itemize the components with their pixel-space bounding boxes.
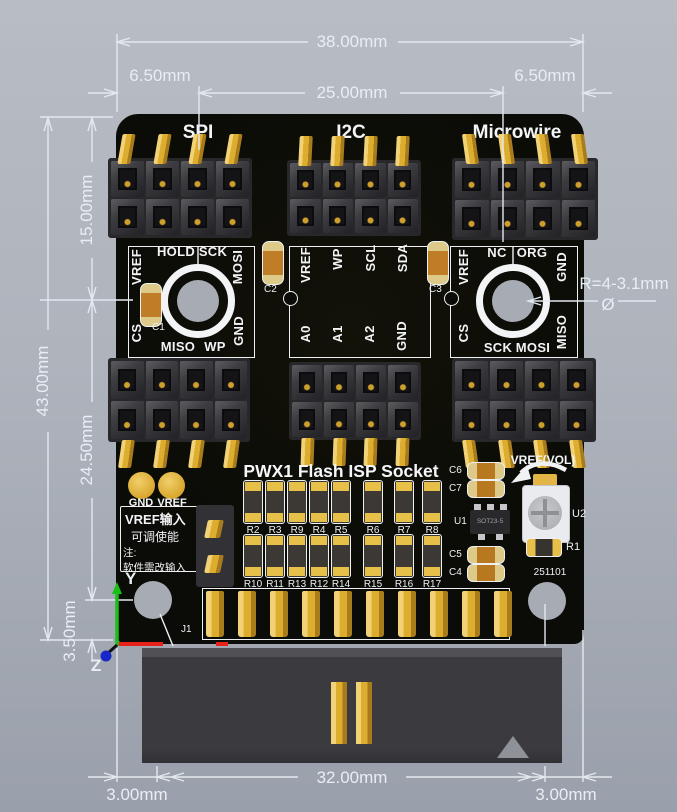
header-socket bbox=[355, 163, 386, 197]
dim-hole-note: R=4-3.1mm bbox=[579, 274, 668, 293]
j1-pin bbox=[334, 591, 352, 637]
header-socket bbox=[562, 161, 596, 198]
resistor: R4 bbox=[309, 480, 329, 524]
ic-u1: SOT23-5 bbox=[470, 510, 510, 534]
dim-connector-width: 32.00mm bbox=[317, 768, 388, 787]
z-axis-dot bbox=[101, 651, 112, 662]
header-socket bbox=[216, 161, 249, 197]
resistor: R12 bbox=[309, 534, 329, 578]
capacitor-c2 bbox=[262, 241, 284, 285]
header-i2c-bottom bbox=[289, 362, 421, 440]
silkscreen-notch bbox=[283, 291, 298, 306]
pin-label: A2 bbox=[363, 311, 377, 357]
pin-label: GND bbox=[395, 313, 409, 359]
resistor: R7 bbox=[394, 480, 414, 524]
resistor: R10 bbox=[243, 534, 263, 578]
resistor: R3 bbox=[265, 480, 285, 524]
header-socket bbox=[215, 361, 248, 399]
header-socket bbox=[290, 199, 321, 233]
pin-label: VREF bbox=[130, 244, 144, 290]
header-microwire-top bbox=[452, 158, 598, 240]
ref-label-u1: U1 bbox=[454, 516, 467, 527]
silkscreen-notch bbox=[444, 291, 459, 306]
connector-pin bbox=[356, 682, 372, 744]
resistor: R13 bbox=[287, 534, 307, 578]
header-socket bbox=[111, 161, 144, 197]
header-socket bbox=[356, 365, 386, 400]
header-i2c-top bbox=[287, 160, 421, 236]
j1-pin bbox=[270, 591, 288, 637]
dim-left-margin: 6.50mm bbox=[129, 66, 190, 85]
header-socket bbox=[355, 199, 386, 233]
j1-pin bbox=[238, 591, 256, 637]
dim-mid-height: 24.50mm bbox=[77, 415, 96, 486]
note-line3: 注: bbox=[121, 545, 201, 560]
mounting-hole-left bbox=[134, 581, 172, 619]
ic-pin bbox=[478, 533, 485, 540]
pin-label: A1 bbox=[331, 311, 345, 357]
resistor: R16 bbox=[394, 534, 414, 578]
testpoint-gnd bbox=[128, 472, 155, 499]
header-socket bbox=[388, 365, 418, 400]
header-socket bbox=[324, 365, 354, 400]
header-socket bbox=[455, 401, 488, 439]
capacitor-c7 bbox=[467, 480, 505, 498]
pcb-3d-view: SPI I2C Microwire VREF HOLD SCK MOSI CS … bbox=[0, 0, 677, 812]
header-socket bbox=[356, 402, 386, 437]
jumper-pin bbox=[204, 520, 224, 538]
diameter-symbol: Ø bbox=[601, 295, 614, 314]
header-microwire-bottom bbox=[452, 358, 596, 442]
header-socket bbox=[111, 361, 144, 399]
testpoint-vref bbox=[158, 472, 185, 499]
header-socket bbox=[455, 161, 489, 198]
header-pin bbox=[363, 136, 378, 166]
pin-label: MOSI bbox=[231, 244, 245, 290]
ref-label-u2: U2 bbox=[572, 508, 586, 520]
resistor: R15 bbox=[363, 534, 383, 578]
capacitor-c4 bbox=[467, 564, 505, 582]
connector-pin bbox=[331, 682, 347, 744]
note-line4: 软件需改输入 bbox=[121, 560, 201, 572]
header-socket bbox=[526, 200, 560, 237]
ref-label-c6: C6 bbox=[449, 465, 462, 476]
vref-vol-label: VREF(VOL) bbox=[508, 453, 578, 467]
header-socket bbox=[146, 199, 179, 235]
ref-label-c7: C7 bbox=[449, 483, 462, 494]
pin-label: SCL bbox=[364, 235, 378, 281]
mounting-hole-right bbox=[528, 582, 566, 620]
header-socket bbox=[560, 361, 593, 399]
spi-hole bbox=[177, 280, 219, 322]
j1-pin bbox=[302, 591, 320, 637]
header-socket bbox=[490, 401, 523, 439]
j1-pin bbox=[398, 591, 416, 637]
idc-connector bbox=[142, 648, 562, 763]
date-code: 251101 bbox=[528, 567, 572, 578]
pin-label: ORG bbox=[509, 246, 555, 260]
pin-label: CS bbox=[457, 310, 471, 356]
header-socket bbox=[562, 200, 596, 237]
header-socket bbox=[491, 200, 525, 237]
header-socket bbox=[146, 361, 179, 399]
resistor: R2 bbox=[243, 480, 263, 524]
pin-label: GND bbox=[232, 308, 246, 354]
header-socket bbox=[292, 365, 322, 400]
pin-label: SDA bbox=[396, 235, 410, 281]
j1-pin bbox=[206, 591, 224, 637]
header-socket bbox=[180, 401, 213, 439]
header-socket bbox=[525, 401, 558, 439]
capacitor-c3 bbox=[427, 241, 449, 285]
header-socket bbox=[525, 361, 558, 399]
ref-label-j1: J1 bbox=[181, 624, 192, 635]
header-socket bbox=[181, 161, 214, 197]
dim-connector-left: 3.00mm bbox=[106, 785, 167, 804]
header-socket bbox=[388, 402, 418, 437]
resistor: R11 bbox=[265, 534, 285, 578]
ref-label-c5: C5 bbox=[449, 549, 462, 560]
capacitor-c1 bbox=[140, 283, 162, 327]
header-socket bbox=[181, 199, 214, 235]
resistor-r1 bbox=[526, 538, 562, 557]
dim-bottom-offset: 3.50mm bbox=[60, 600, 79, 661]
ic-pin bbox=[496, 533, 503, 540]
header-socket bbox=[180, 361, 213, 399]
header-spi-top bbox=[108, 158, 252, 238]
pin-label: MISO bbox=[555, 309, 569, 355]
resistor: R8 bbox=[422, 480, 442, 524]
resistor: R17 bbox=[422, 534, 442, 578]
capacitor-c6 bbox=[467, 462, 505, 480]
header-socket bbox=[455, 200, 489, 237]
header-pin bbox=[331, 136, 346, 166]
pin-label: MOSI bbox=[510, 341, 556, 355]
header-socket bbox=[491, 161, 525, 198]
j1-pin-row bbox=[202, 588, 510, 640]
header-socket bbox=[146, 401, 179, 439]
header-socket bbox=[111, 401, 144, 439]
header-socket bbox=[146, 161, 179, 197]
dim-inner-width: 25.00mm bbox=[317, 83, 388, 102]
header-socket bbox=[323, 199, 354, 233]
header-spi-bottom bbox=[108, 358, 250, 442]
vref-jumper-header bbox=[196, 505, 234, 587]
note-line2: 可调使能 bbox=[121, 528, 201, 545]
ref-label-c4: C4 bbox=[449, 567, 462, 578]
header-socket bbox=[216, 199, 249, 235]
pin-label: WP bbox=[331, 236, 345, 282]
z-axis bbox=[107, 645, 117, 654]
note-line1: VREF输入 bbox=[121, 507, 201, 528]
ref-label-c1: C1 bbox=[152, 322, 165, 333]
ref-label-r1: R1 bbox=[566, 541, 580, 553]
j1-pin bbox=[494, 591, 512, 637]
dim-total-width: 38.00mm bbox=[317, 32, 388, 51]
header-socket bbox=[215, 401, 248, 439]
vref-note-box: VREF输入 可调使能 注: 软件需改输入 bbox=[120, 506, 202, 572]
pin-label: VREF bbox=[299, 242, 313, 288]
header-pin bbox=[298, 136, 313, 166]
header-socket bbox=[324, 402, 354, 437]
j1-pin bbox=[430, 591, 448, 637]
j1-pin bbox=[366, 591, 384, 637]
pin-label: A0 bbox=[299, 311, 313, 357]
resistor: R14 bbox=[331, 534, 351, 578]
pin-label: VREF bbox=[457, 244, 471, 290]
header-socket bbox=[388, 199, 419, 233]
header-socket bbox=[560, 401, 593, 439]
resistor: R6 bbox=[363, 480, 383, 524]
board-title: PWX1 Flash ISP Socket bbox=[236, 461, 446, 482]
dim-total-height: 43.00mm bbox=[33, 346, 52, 417]
jumper-pin bbox=[204, 555, 224, 573]
header-socket bbox=[111, 199, 144, 235]
header-socket bbox=[292, 402, 322, 437]
header-socket bbox=[455, 361, 488, 399]
capacitor-c5 bbox=[467, 546, 505, 564]
j1-pin bbox=[462, 591, 480, 637]
microwire-hole bbox=[492, 280, 534, 322]
header-pin bbox=[571, 134, 588, 164]
dim-right-margin: 6.50mm bbox=[514, 66, 575, 85]
ref-label-c3: C3 bbox=[429, 284, 442, 295]
header-socket bbox=[290, 163, 321, 197]
header-pin bbox=[395, 136, 410, 166]
pin1-triangle-marker bbox=[497, 736, 529, 758]
header-socket bbox=[526, 161, 560, 198]
header-socket bbox=[388, 163, 419, 197]
header-socket bbox=[490, 361, 523, 399]
header-socket bbox=[323, 163, 354, 197]
z-axis-label: Z bbox=[91, 656, 101, 675]
dim-top-height: 15.00mm bbox=[77, 175, 96, 246]
dim-connector-right: 3.00mm bbox=[535, 785, 596, 804]
trimmer-dial bbox=[528, 496, 562, 530]
ref-label-c2: C2 bbox=[264, 284, 277, 295]
resistor: R5 bbox=[331, 480, 351, 524]
resistor: R9 bbox=[287, 480, 307, 524]
pin-label: GND bbox=[555, 244, 569, 290]
